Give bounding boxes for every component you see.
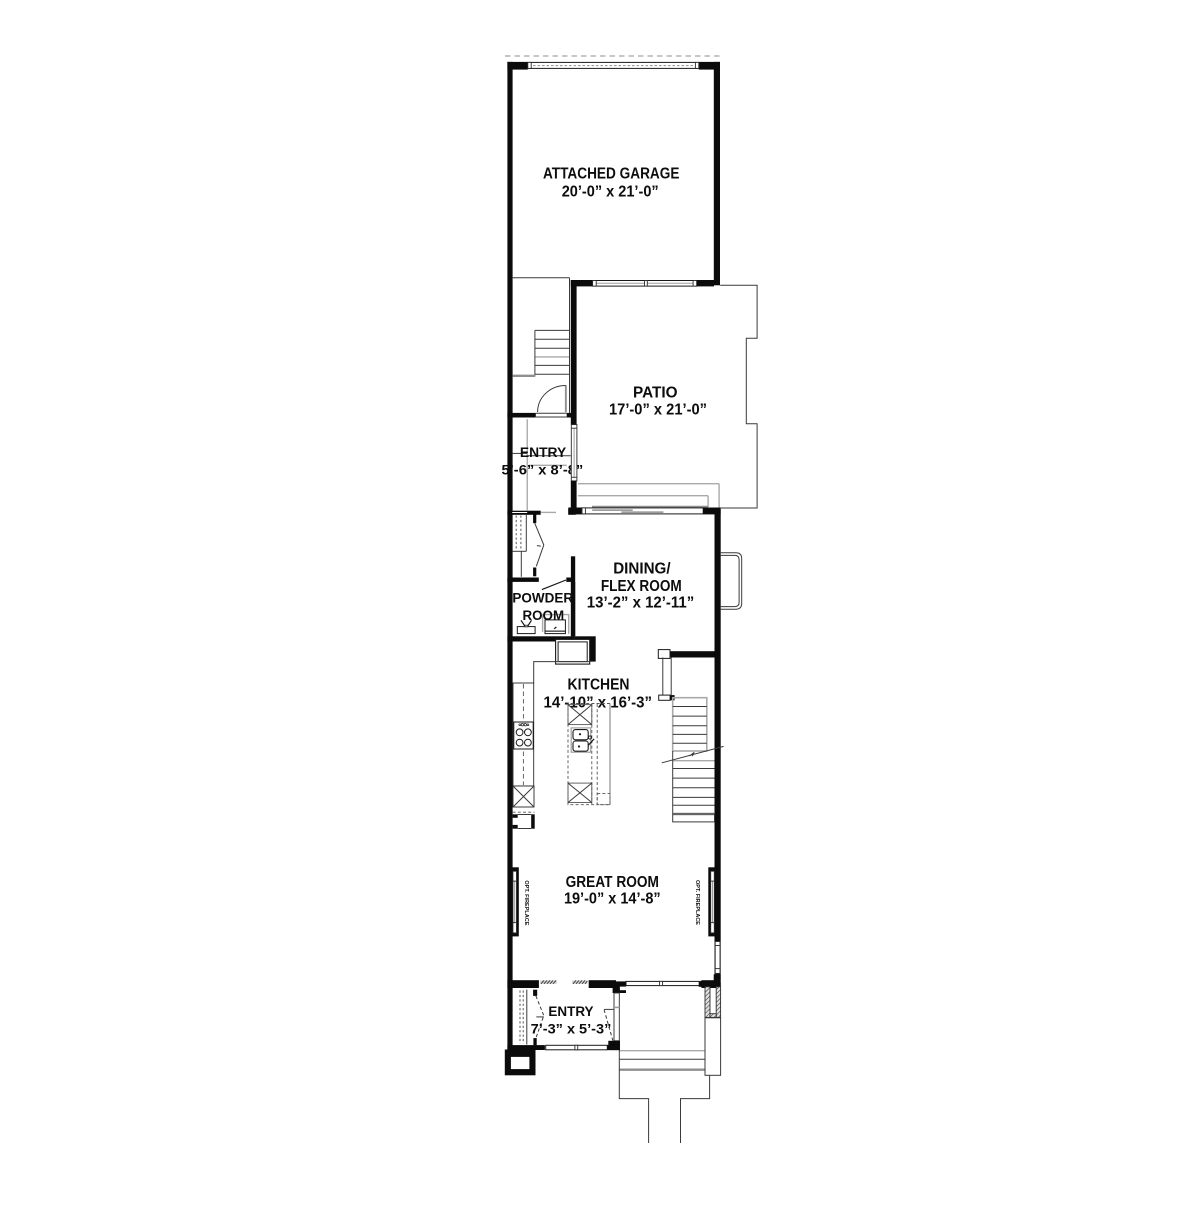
svg-text:ROOM: ROOM bbox=[523, 608, 565, 623]
svg-text:13’-2” x 12’-11”: 13’-2” x 12’-11” bbox=[587, 594, 694, 611]
svg-text:19’-0” x 14’-8”: 19’-0” x 14’-8” bbox=[564, 891, 661, 908]
svg-text:17’-0” x 21’-0”: 17’-0” x 21’-0” bbox=[609, 401, 707, 418]
svg-text:ENTRY: ENTRY bbox=[520, 445, 566, 460]
svg-text:14’-10” x 16’-3”: 14’-10” x 16’-3” bbox=[544, 695, 653, 712]
svg-text:FLEX ROOM: FLEX ROOM bbox=[601, 578, 682, 595]
svg-text:DINING/: DINING/ bbox=[613, 561, 671, 578]
svg-text:ATTACHED GARAGE: ATTACHED GARAGE bbox=[543, 166, 680, 183]
svg-text:OPT. FIREPLACE: OPT. FIREPLACE bbox=[523, 880, 529, 925]
svg-text:ENTRY: ENTRY bbox=[548, 1004, 593, 1019]
svg-text:OPT. FIREPLACE: OPT. FIREPLACE bbox=[694, 880, 700, 925]
svg-text:20’-0” x 21’-0”: 20’-0” x 21’-0” bbox=[562, 184, 659, 201]
svg-text:7’-3” x 5’-3”: 7’-3” x 5’-3” bbox=[531, 1022, 612, 1037]
svg-text:GREAT ROOM: GREAT ROOM bbox=[566, 874, 659, 891]
svg-text:PATIO: PATIO bbox=[633, 385, 678, 402]
svg-text:POWDER: POWDER bbox=[512, 591, 573, 606]
svg-text:KITCHEN: KITCHEN bbox=[568, 677, 630, 694]
